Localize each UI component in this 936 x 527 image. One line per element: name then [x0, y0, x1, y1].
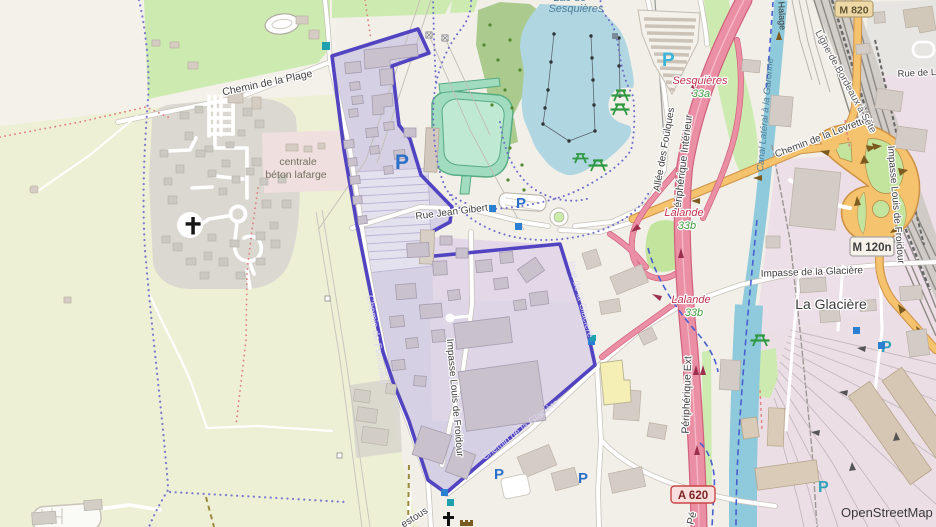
svg-text:Sesquières: Sesquières	[548, 3, 604, 15]
svg-text:33b: 33b	[685, 307, 703, 319]
svg-text:M 820: M 820	[839, 5, 868, 17]
svg-text:Lalande: Lalande	[671, 294, 710, 306]
svg-text:Rue de L: Rue de L	[897, 67, 936, 80]
svg-text:La Glacière: La Glacière	[795, 296, 867, 312]
svg-text:Lac de: Lac de	[553, 0, 586, 4]
svg-text:33b: 33b	[678, 220, 696, 232]
svg-text:centrale: centrale	[279, 156, 317, 168]
svg-text:P: P	[395, 151, 409, 174]
svg-text:Halage: Halage	[776, 1, 787, 30]
svg-text:P: P	[578, 470, 588, 487]
svg-text:A 620: A 620	[678, 490, 708, 502]
svg-text:OpenStreetMap: OpenStreetMap	[841, 505, 933, 520]
svg-text:Sesquières: Sesquières	[672, 75, 728, 87]
svg-text:M 120n: M 120n	[853, 242, 892, 254]
svg-text:P: P	[516, 195, 526, 212]
svg-text:P: P	[818, 479, 829, 496]
svg-text:béton lafarge: béton lafarge	[265, 169, 326, 181]
svg-text:33a: 33a	[692, 88, 710, 100]
svg-text:Lalande: Lalande	[664, 207, 703, 219]
svg-text:P: P	[662, 50, 675, 71]
